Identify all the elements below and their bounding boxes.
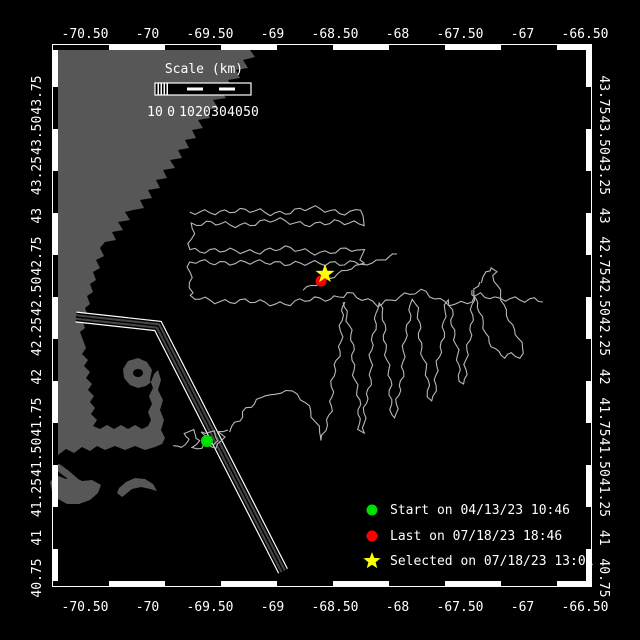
legend-item-last: Last on 07/18/23 18:46 [390,529,562,544]
scale-bar-hatch [161,83,163,95]
scale-bar-segment [203,83,219,95]
map-frame-tick [586,171,591,213]
lon-tick-label: -69 [261,600,284,615]
lat-tick-label: 42.75 [30,236,45,275]
map-canvas[interactable]: -70.50-70.50-70-70-69.50-69.50-69-69-68.… [0,0,640,640]
scale-bar-segment [187,88,203,91]
map-frame-tick [277,581,333,586]
map-frame-tick [501,581,557,586]
scale-bar-segment [171,83,187,95]
map-frame-tick [389,45,445,50]
legend-selected-label: Selected on 07/18/23 13:01 [390,554,594,569]
lat-tick-label: 42 [596,369,611,385]
lat-tick-label: 41.75 [596,397,611,436]
lat-tick-label: 42.75 [596,236,611,275]
land-polygon [117,478,157,497]
lat-tick-label: 41.75 [30,397,45,436]
legend-item-start: Start on 04/13/23 10:46 [390,503,570,518]
lat-tick-label: 43.50 [596,116,611,155]
lat-tick-label: 41.50 [596,438,611,477]
lat-tick-label: 43.75 [596,75,611,114]
lat-tick-label: 41 [596,530,611,546]
lat-tick-label: 40.75 [596,558,611,597]
lat-tick-label: 42.50 [596,277,611,316]
map-frame-tick [53,171,58,213]
map-frame-tick [586,87,591,129]
survey-track[interactable] [472,268,524,358]
lat-tick-label: 41 [30,530,45,546]
scale-bar-hatch [164,83,166,95]
survey-track[interactable] [187,206,543,307]
lat-tick-label: 41.25 [596,478,611,517]
scale-bar-segment [219,88,235,91]
map-frame-tick [53,423,58,465]
map-frame-tick [165,581,221,586]
map-frame-tick [53,45,109,50]
scale-bar-label: 30 [211,105,227,120]
lat-tick-label: 43.50 [30,116,45,155]
lon-tick-label: -70 [136,600,159,615]
lon-tick-label: -68 [386,27,409,42]
lat-tick-label: 43.25 [596,156,611,195]
map-frame-tick [586,423,591,465]
lon-tick-label: -70.50 [62,600,109,615]
scale-bar-hatch [167,83,169,95]
lon-tick-label: -69.50 [187,600,234,615]
lat-tick-label: 42.50 [30,277,45,316]
scale-bar-label: 10 [179,105,195,120]
lat-tick-label: 43.25 [30,156,45,195]
map-frame-tick [53,255,58,297]
scale-bar-segment [155,83,171,95]
lat-tick-label: 42 [30,369,45,385]
lon-tick-label: -67 [511,600,534,615]
map-frame-tick [165,45,221,50]
scale-bar-title: Scale (km) [156,62,252,77]
map-frame-tick [277,45,333,50]
lon-tick-label: -67.50 [437,27,484,42]
lon-tick-label: -69 [261,27,284,42]
lat-tick-label: 41.50 [30,438,45,477]
map-frame-tick [53,339,58,381]
scale-bar-label: 10 [147,105,163,120]
survey-track[interactable] [343,282,480,433]
survey-track[interactable] [230,302,345,441]
legend-item-selected: Selected on 07/18/23 13:01 [390,554,594,569]
lon-tick-label: -68.50 [312,600,359,615]
lon-tick-label: -69.50 [187,27,234,42]
scale-bar-hatch [158,83,160,95]
map-frame-tick [586,255,591,297]
scale-bar-label: 40 [227,105,243,120]
legend-selected-star-icon [363,552,380,568]
lon-tick-label: -66.50 [562,600,609,615]
lon-tick-label: -70.50 [62,27,109,42]
start-marker[interactable] [201,435,213,447]
glider-track-map-view: -70.50-70.50-70-70-69.50-69.50-69-69-68.… [0,0,640,640]
scale-bar-label: 50 [243,105,259,120]
lat-tick-label: 42.25 [596,317,611,356]
map-frame-tick [586,507,591,549]
lon-tick-label: -68.50 [312,27,359,42]
map-frame-tick [53,581,109,586]
lat-tick-label: 43.75 [30,75,45,114]
scale-bar-label: 0 [167,105,175,120]
legend-last-label: Last on 07/18/23 18:46 [390,529,562,544]
map-frame-tick [501,45,557,50]
lon-tick-label: -67.50 [437,600,484,615]
scale-bar-segment [235,83,251,95]
lat-tick-label: 40.75 [30,558,45,597]
lon-tick-label: -66.50 [562,27,609,42]
map-frame-tick [53,507,58,549]
legend-start-label: Start on 04/13/23 10:46 [390,503,570,518]
lon-tick-label: -67 [511,27,534,42]
map-frame-tick [389,581,445,586]
legend-start-dot-icon [367,505,378,516]
lon-tick-label: -68 [386,600,409,615]
lat-tick-label: 41.25 [30,478,45,517]
map-frame-tick [53,87,58,129]
lon-tick-label: -70 [136,27,159,42]
lat-tick-label: 42.25 [30,317,45,356]
legend-last-dot-icon [367,531,378,542]
provincetown-harbor [133,369,143,377]
lat-tick-label: 43 [30,208,45,224]
lat-tick-label: 43 [596,208,611,224]
scale-bar-label: 20 [195,105,211,120]
map-frame-tick [586,339,591,381]
